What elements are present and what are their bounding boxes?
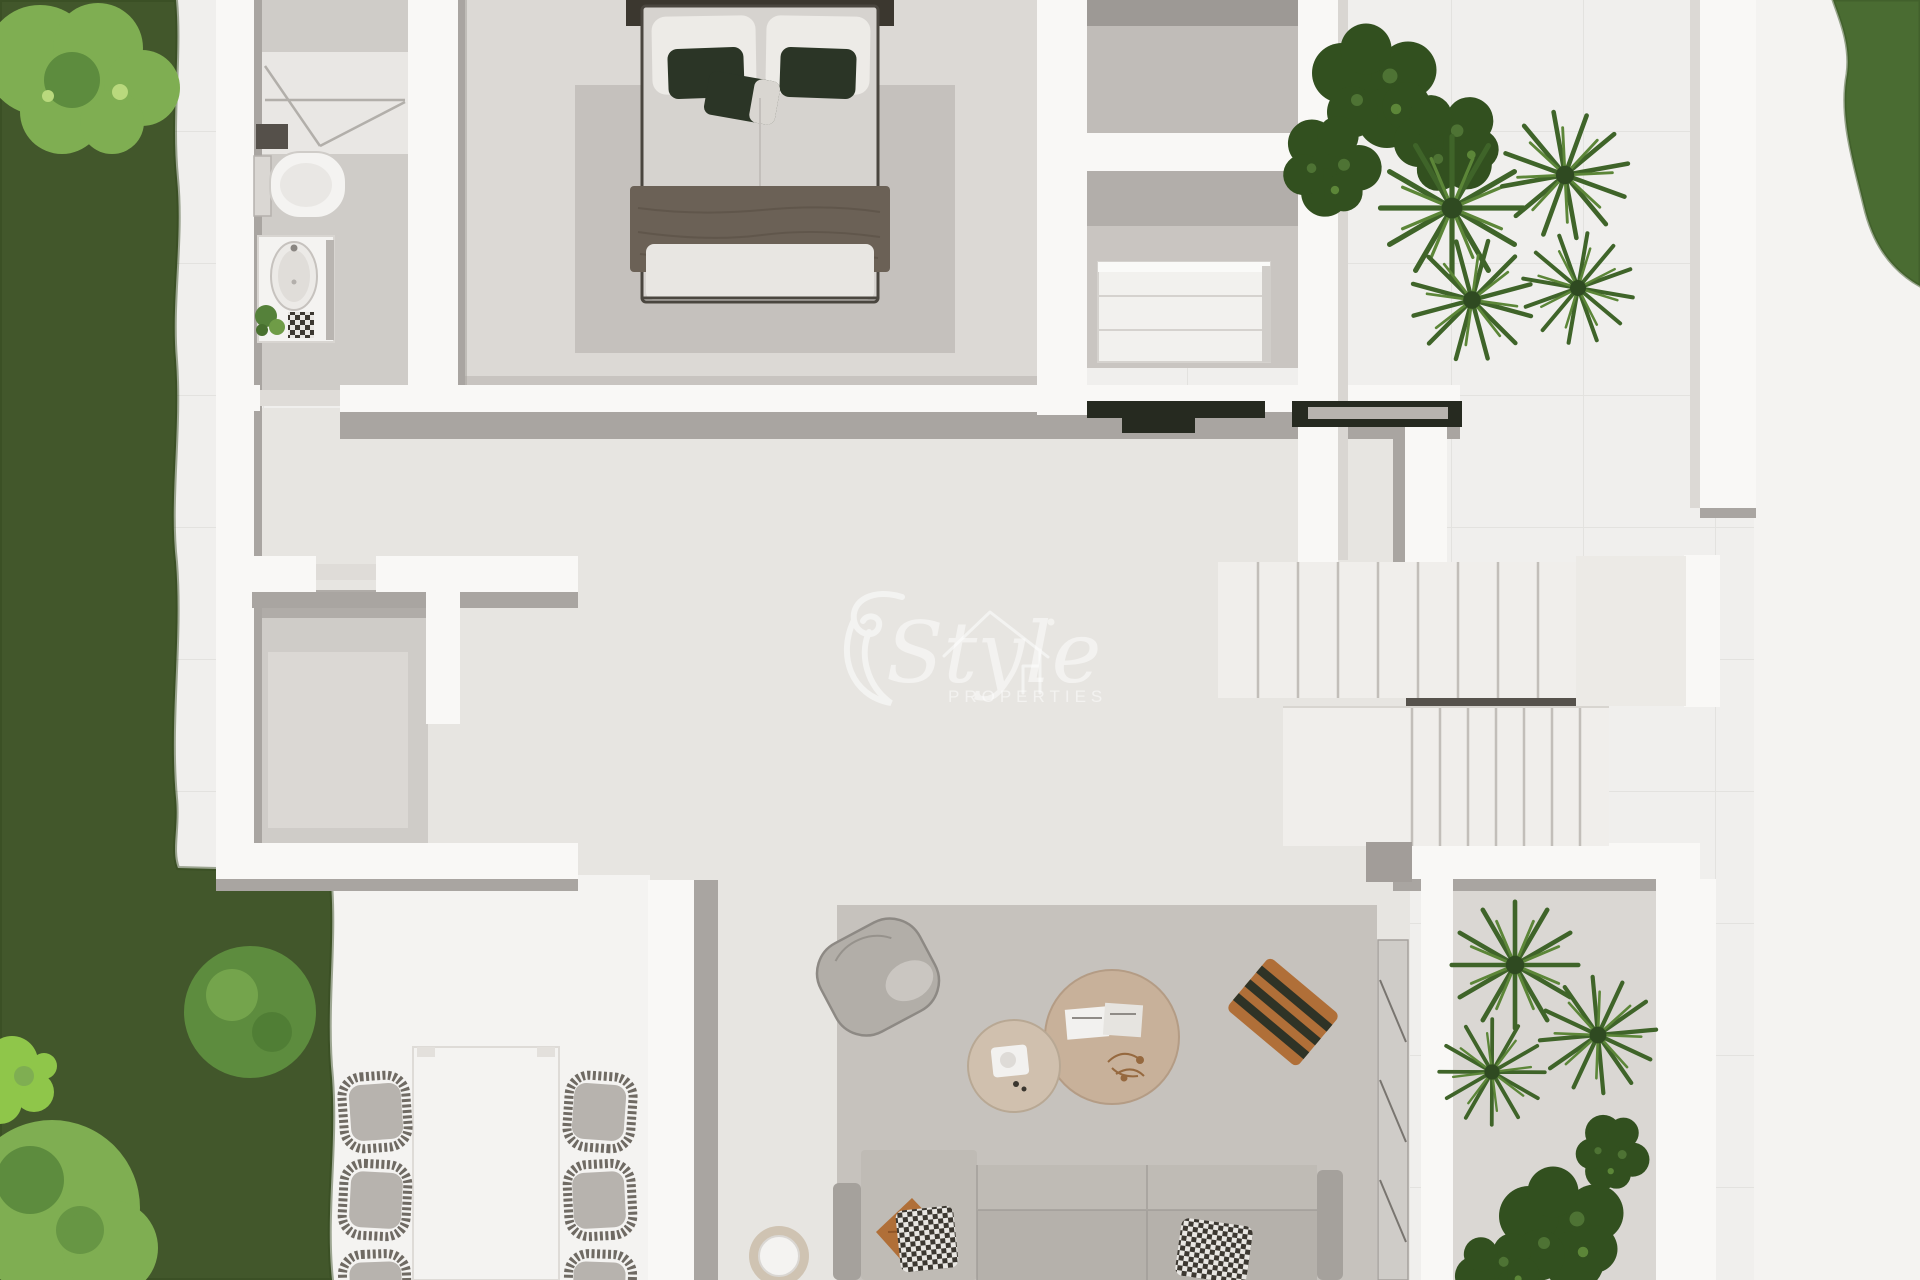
wall-below-stairs <box>1393 843 1700 879</box>
floor-plan-render: Style PROPERTIES <box>0 0 1920 1280</box>
dressing-room <box>1098 262 1271 362</box>
stairs-newel-post <box>1366 842 1412 882</box>
stairs-landing-upper <box>1576 556 1686 706</box>
terrace-threshold-shadow <box>694 880 718 1280</box>
wall-face <box>1690 0 1700 508</box>
planter-wall-left <box>1421 879 1453 1280</box>
glass-panel <box>1378 940 1408 1280</box>
storage-door-threshold <box>316 564 376 580</box>
wall-outer-left <box>216 0 254 852</box>
shower-mat <box>256 124 288 149</box>
faucet-icon <box>291 245 298 252</box>
table-leg <box>417 1047 435 1057</box>
wall-main-left-stub <box>216 385 260 411</box>
vanity-sink-icon <box>255 236 334 342</box>
master-bedroom <box>626 0 894 302</box>
sofa-armrest <box>833 1183 861 1280</box>
bush-round <box>184 946 316 1078</box>
sofa-icon <box>833 1150 1343 1280</box>
coffee-table-icon <box>1045 970 1179 1104</box>
wall-outer-right <box>1700 0 1756 508</box>
double-bed-icon <box>626 0 894 302</box>
wall-face <box>252 592 578 608</box>
checkered-pillow <box>1174 1217 1253 1280</box>
checkered-pillow <box>895 1205 959 1273</box>
table-leg <box>537 1047 555 1057</box>
brand-sub-text: PROPERTIES <box>948 687 1107 706</box>
wall-storage-top-a <box>216 556 316 592</box>
toilet-icon <box>254 152 346 218</box>
bathroom-door-threshold <box>260 390 340 406</box>
closet-niche-shadow <box>1087 0 1298 26</box>
wall-bedroom-right <box>1037 0 1087 415</box>
stairs-gap <box>1406 698 1576 707</box>
wall-stairs-right <box>1684 555 1720 707</box>
watermark-logo: Style PROPERTIES <box>847 594 1107 706</box>
planter-wall-right <box>1656 879 1716 1280</box>
stairs-upper-flight <box>1218 562 1576 698</box>
sofa-armrest <box>1317 1170 1343 1280</box>
terrace-threshold <box>648 880 694 1280</box>
wall-face <box>216 879 578 891</box>
dressing-room-wall-shadow <box>1087 171 1298 226</box>
wall-face <box>1393 411 1405 565</box>
dining-table-icon <box>413 1047 559 1280</box>
books <box>1103 1003 1143 1038</box>
living-room <box>749 905 1408 1280</box>
wall-storage-top-b <box>376 556 578 592</box>
floor-plan-svg: Style PROPERTIES <box>0 0 1920 1280</box>
dresser-icon <box>1098 262 1271 362</box>
wall-storage-right <box>426 592 460 724</box>
vanity-tray <box>288 312 314 338</box>
stairs-lower-flight <box>1283 706 1609 846</box>
wall-house-bottom-left <box>216 843 578 879</box>
coffee-table-small-icon <box>968 1020 1060 1112</box>
wall-bathroom-divider <box>408 0 458 390</box>
books <box>1065 1006 1109 1040</box>
wall-face <box>1700 508 1756 518</box>
storage-room-rug <box>268 652 408 828</box>
